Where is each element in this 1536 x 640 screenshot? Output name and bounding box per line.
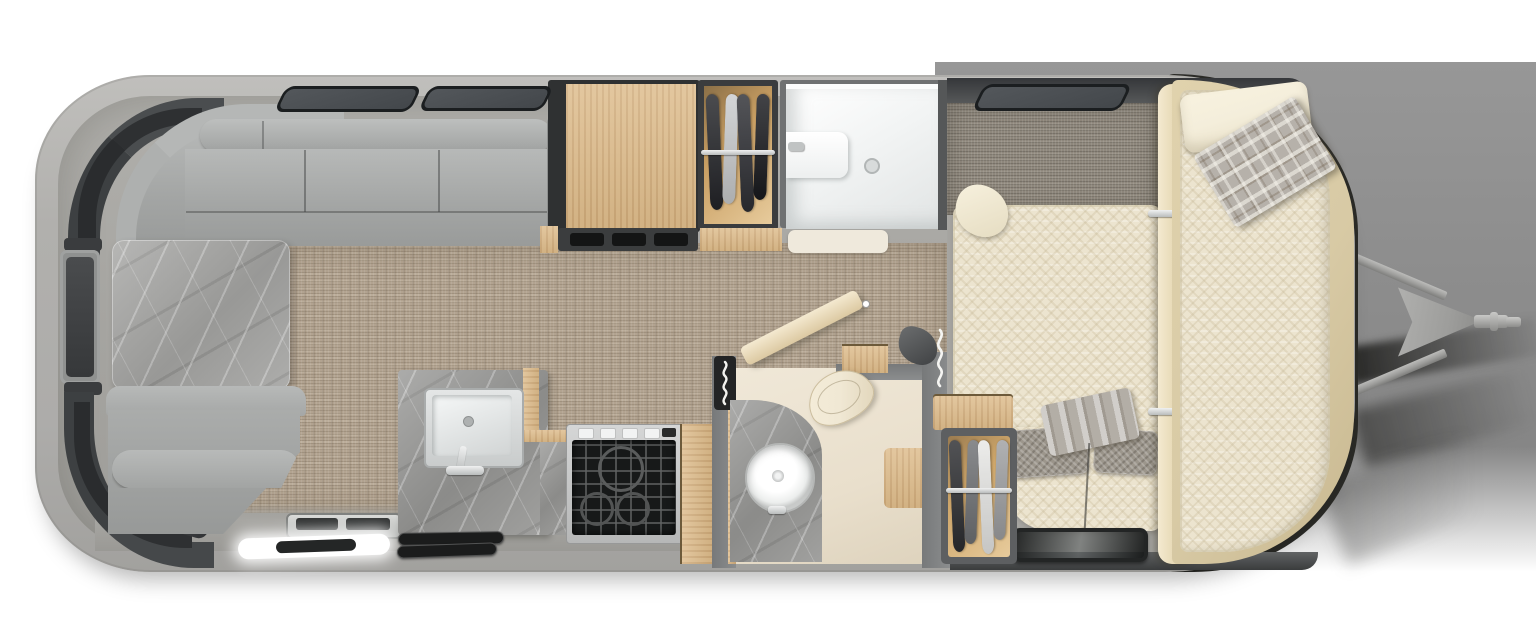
sink-drain-icon	[463, 416, 474, 427]
galley-threshold-tan	[700, 228, 782, 251]
garment-icon	[753, 94, 770, 200]
sofa-seat-front-seam	[186, 211, 552, 213]
roof-vent-icon	[418, 86, 554, 111]
stove-burner-icon	[580, 492, 614, 526]
entry-step-slot	[296, 518, 338, 530]
shower-drain-icon	[864, 158, 880, 174]
bedroom-wardrobe-rod	[946, 488, 1012, 493]
roof-vent-icon	[971, 84, 1132, 111]
galley-vent-slot	[612, 233, 646, 246]
sofa-seat-seam	[304, 150, 306, 212]
stove-knob	[600, 428, 616, 439]
counter-wood-trim-vertical	[523, 368, 539, 438]
bench-seat-roll	[112, 450, 300, 488]
roof-vent-icon	[274, 86, 423, 112]
dinette-table	[112, 240, 290, 390]
galley-threshold-wood	[540, 226, 558, 253]
floorplan-figure	[0, 0, 1536, 640]
cabinet-counter-top	[566, 84, 696, 228]
galley-vent-slot	[570, 233, 604, 246]
sofa-backrest-seam	[262, 121, 264, 150]
wardrobe-hanging-clothes	[951, 440, 1007, 554]
hitch-coupler-collar	[1490, 312, 1498, 331]
side-window-glass	[66, 257, 94, 377]
shower-fixture-icon	[788, 142, 804, 151]
wardrobe-hanging-clothes	[708, 94, 768, 216]
shower-door-mat	[788, 230, 888, 253]
stove-vent-slot	[662, 428, 676, 437]
sofa-backrest-roll	[200, 119, 552, 152]
hitch-coupler-tip	[1506, 317, 1521, 327]
door-knob-icon	[862, 300, 870, 308]
stove-knob	[622, 428, 638, 439]
shower-bench-ledge	[786, 132, 848, 178]
nightstand-counter	[933, 396, 1013, 430]
stove-knob	[578, 428, 594, 439]
garment-icon	[949, 440, 966, 552]
tall-pantry-cabinet	[682, 424, 712, 564]
galley-vent-slot	[654, 233, 688, 246]
entry-step-slot	[346, 518, 390, 530]
garment-icon	[978, 440, 995, 554]
bathroom-faucet	[768, 506, 786, 514]
stove-burner-icon	[616, 492, 650, 526]
medicine-cabinet	[842, 346, 888, 373]
tv-flat-panel	[1012, 528, 1148, 562]
wardrobe-rod	[701, 150, 775, 155]
sofa-seat	[185, 149, 553, 246]
stove-knob	[644, 428, 660, 439]
sofa-seat-seam	[438, 150, 440, 212]
stove-burner-icon	[598, 446, 644, 492]
bathroom-sink-drain-icon	[772, 470, 784, 482]
kitchen-faucet-handle	[446, 466, 484, 475]
